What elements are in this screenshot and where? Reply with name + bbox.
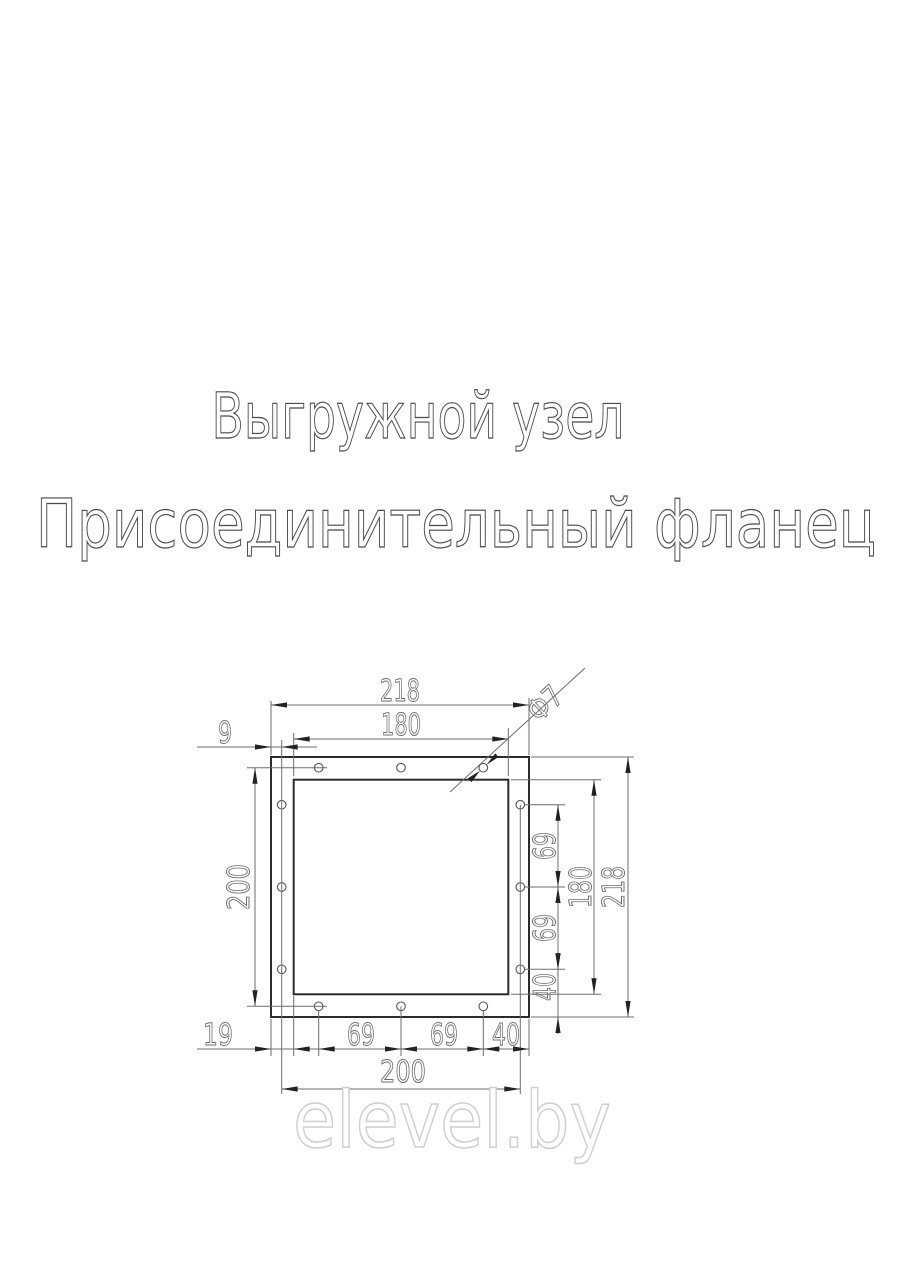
dim-69-right-upper: 69 [528,832,563,860]
hole-top-2 [397,763,406,772]
dim-40-bottom: 40 [492,1018,520,1053]
title-line-2: Присоединительный фланец [36,485,876,563]
dim-69-bottom-left: 69 [347,1018,375,1053]
dim-9-top: 9 [218,716,232,751]
bolt-holes [277,763,524,1010]
dim-40-right: 40 [528,973,563,1001]
dimension-labels: 218 180 9 200 69 69 40 180 218 19 69 69 … [203,674,632,1090]
dim-200-left: 200 [222,864,257,910]
flange-outer-square [271,757,529,1017]
flange-inner-opening [294,780,509,995]
dim-180-right: 180 [564,866,599,908]
dim-69-right-lower: 69 [528,914,563,942]
dim-218-top: 218 [380,674,420,709]
title-line-1: Выгружной узел [212,380,625,453]
drawing-page: Выгружной узел Присоединительный фланец [0,0,905,1280]
flange-technical-drawing: Выгружной узел Присоединительный фланец [0,0,905,1280]
flange-outline [271,757,529,1017]
leader-hole-diameter [450,668,585,792]
dim-180-top: 180 [381,708,421,743]
dim-hole-diameter: Ф7 [520,679,570,729]
hole-bottom-3 [479,1002,488,1011]
watermark-text: elevel.by [293,1076,611,1166]
dim-69-bottom-right: 69 [430,1018,458,1053]
drawing-title: Выгружной узел Присоединительный фланец [36,380,876,563]
dim-19-bottom: 19 [203,1018,233,1053]
dim-218-right: 218 [597,866,632,908]
